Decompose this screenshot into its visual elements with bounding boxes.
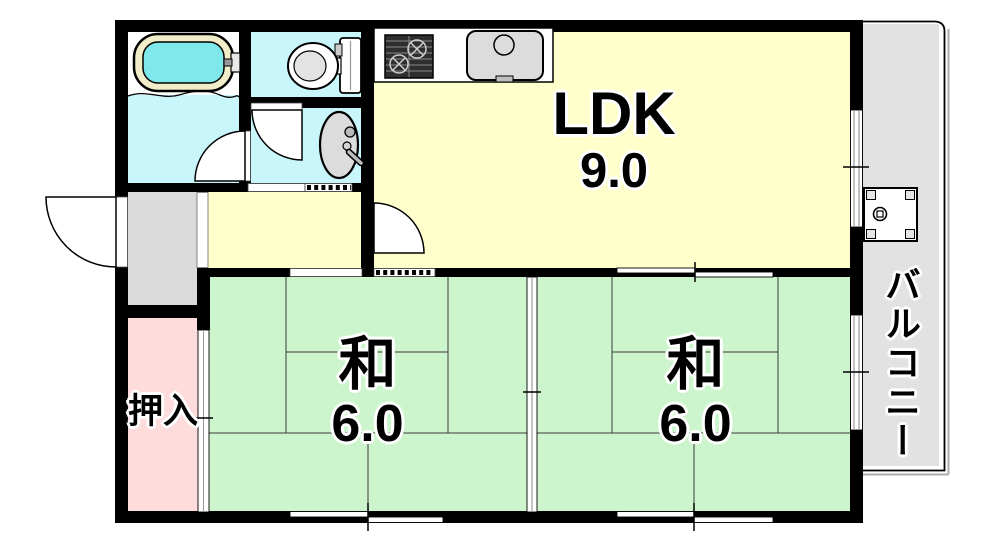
wall-closet-stub <box>197 268 210 330</box>
ldk-label-text: LDK <box>529 83 699 145</box>
ldk-balcony-window <box>851 110 863 227</box>
washing-machine-pan-icon <box>864 188 917 241</box>
corridor-floor <box>208 192 361 268</box>
wall-left <box>115 20 128 523</box>
window-right-room-panel-b <box>694 517 773 523</box>
ldk-room-label: LDK 9.0 <box>529 83 699 197</box>
wall-entrance-closet <box>115 305 210 318</box>
ldk-area-text: 9.0 <box>529 145 699 197</box>
bathtub-icon <box>134 34 240 91</box>
kitchen-counter <box>374 28 553 82</box>
window-left-room-panel-b <box>368 517 443 523</box>
balcony-label: バルコニー <box>876 256 924 471</box>
japanese-room-left-entry-opening <box>290 269 362 277</box>
washbasin-faucet <box>345 127 355 137</box>
ldk-tatami-sliding-panel-a <box>617 268 695 273</box>
window-left-room-panel-a <box>290 512 368 518</box>
toilet-icon <box>288 38 361 93</box>
pan-drain <box>874 208 887 221</box>
washroom-sliding-door <box>248 184 305 192</box>
kitchen-sink-icon <box>467 31 543 82</box>
japanese-room-left-name: 和 <box>285 334 450 396</box>
floor-plan: LDK 9.0 和 6.0 和 6.0 押入 バルコニー <box>0 0 987 548</box>
entrance-step <box>197 193 208 268</box>
washbasin-bowl <box>320 112 358 178</box>
ldk-tatami-sliding-track <box>374 269 435 277</box>
japanese-room-right-name: 和 <box>613 334 778 396</box>
entrance-door-swing <box>46 197 116 267</box>
floor-plan-drawing <box>0 0 987 548</box>
ldk-tatami-sliding-panel-b <box>695 272 773 277</box>
bathtub-faucet-handle <box>224 59 232 66</box>
japanese-room-right-area: 6.0 <box>613 396 778 452</box>
entrance-hall-floor <box>128 192 197 305</box>
window-right-room-panel-a <box>617 512 694 518</box>
japanese-room-right-label: 和 6.0 <box>613 334 778 452</box>
closet-label: 押入 <box>120 392 206 432</box>
japanese-room-left-label: 和 6.0 <box>285 334 450 452</box>
toilet-flush-handle <box>335 44 342 56</box>
gas-stove-icon <box>385 35 433 78</box>
wall-corridor-ldk <box>361 32 374 268</box>
japanese-room-left-area: 6.0 <box>285 396 450 452</box>
